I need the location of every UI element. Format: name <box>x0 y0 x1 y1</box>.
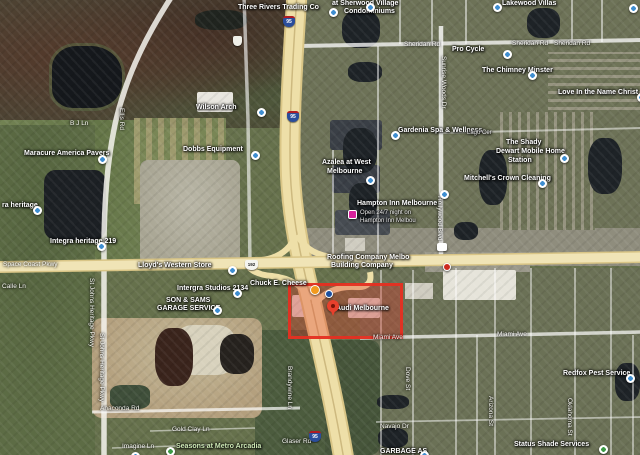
place-label[interactable]: Building Company <box>331 262 393 269</box>
road-label: Sheridan Rd <box>554 40 590 47</box>
garbage-pin[interactable] <box>420 451 429 455</box>
garage-service-pin[interactable] <box>213 306 222 315</box>
road-label: Ellis Rd <box>118 108 125 130</box>
place-label[interactable]: Seasons at Metro Arcadia <box>176 443 261 450</box>
place-label[interactable]: Audi Melbourne <box>336 305 389 312</box>
place-label[interactable]: Dobbs Equipment <box>183 146 243 153</box>
place-label[interactable]: Dewart Mobile Home <box>496 148 565 155</box>
place-label[interactable]: The Shady <box>506 139 541 146</box>
place-label[interactable]: Azalea at West <box>322 159 371 166</box>
route-shield-95: 95 <box>287 111 299 122</box>
road-label: Sheridan Rd <box>404 41 440 48</box>
road-label: St Johns Heritage Pkwy <box>88 278 95 347</box>
mitchells-pin[interactable] <box>538 179 547 188</box>
road-label: Miami Ave <box>373 334 403 341</box>
road-label: B J Ln <box>70 120 88 127</box>
poi-pin[interactable] <box>440 190 449 199</box>
place-label[interactable]: Redfox Pest Service <box>563 370 630 377</box>
place-label[interactable]: Pro Cycle <box>452 46 484 53</box>
road-label: Calle Ln <box>2 283 26 290</box>
store-badge-pin[interactable] <box>437 243 447 251</box>
lloyds-western-pin[interactable] <box>228 266 237 275</box>
place-label[interactable]: SON & SAMS <box>166 297 210 304</box>
route-shield-95: 95 <box>283 16 295 27</box>
maracure-pavers-pin[interactable] <box>98 155 107 164</box>
road-label: Oklahoma St <box>566 398 573 436</box>
road-label: Imagine Ln <box>122 443 154 450</box>
road-label: St Johns Heritage Pkwy <box>98 333 105 402</box>
place-label[interactable]: Lakewood Villas <box>502 0 556 7</box>
place-label[interactable]: Lago Cer <box>467 130 492 136</box>
place-label[interactable]: Three Rivers Trading Co <box>238 4 319 11</box>
intergra-studios-pin[interactable] <box>233 289 242 298</box>
seasons-park-pin[interactable] <box>166 447 175 455</box>
place-label[interactable]: The Chimney Minster <box>482 67 553 74</box>
minor-grid-south <box>376 268 640 455</box>
integra-heritage-pin[interactable] <box>97 242 106 251</box>
place-label[interactable]: Station <box>508 157 532 164</box>
st-johns-heritage-pkwy-road <box>104 0 172 455</box>
place-label[interactable]: Integra heritage 219 <box>50 238 116 245</box>
place-label[interactable]: Hampton Inn Melbou <box>360 218 416 224</box>
place-label[interactable]: Love In the Name Christ <box>558 89 638 96</box>
road-label: Glaser Rd <box>282 438 311 445</box>
road-label: Dove St <box>404 367 411 390</box>
route-shield-192: 192 <box>245 260 258 270</box>
road-label: Sunrise Woods Dr <box>440 56 447 109</box>
dobbs-equipment-pin[interactable] <box>251 151 260 160</box>
road-label: Space Coast Pkwy <box>3 261 58 268</box>
chimney-pin[interactable] <box>528 71 537 80</box>
status-shade-pin[interactable] <box>599 445 608 454</box>
place-label[interactable]: Lloyd's Western Store <box>138 262 212 269</box>
route-shield-blank <box>233 36 242 46</box>
place-label[interactable]: Hampton Inn Melbourne <box>357 200 437 207</box>
road-label: Anaconda Rd <box>100 405 139 412</box>
sherwood-village-pin[interactable] <box>366 3 375 12</box>
place-label[interactable]: Melbourne <box>327 168 362 175</box>
poi-pin[interactable] <box>629 4 638 13</box>
place-label[interactable]: GARAGE SERVICE <box>157 305 220 312</box>
i95-freeway <box>290 0 344 455</box>
lakewood-villas-pin[interactable] <box>493 3 502 12</box>
gardenia-spa-pin[interactable] <box>391 131 400 140</box>
place-label[interactable]: Status Shade Services <box>514 441 589 448</box>
chuck-e-cheese-pin[interactable] <box>310 285 320 295</box>
hampton-inn-ad-pin[interactable] <box>348 210 357 219</box>
place-label[interactable]: Open 24/7 night on <box>360 210 411 216</box>
minor-road <box>244 0 250 264</box>
place-label[interactable]: Roofing Company Melbo <box>327 254 409 261</box>
road-label: Sheridan Rd <box>512 40 548 47</box>
road-label: Navajo Dr <box>380 423 409 430</box>
place-label[interactable]: Wilson Arch <box>196 104 237 111</box>
redfox-pest-pin[interactable] <box>626 374 635 383</box>
business-logo-pin[interactable] <box>325 290 333 298</box>
pro-cycle-pin[interactable] <box>503 50 512 59</box>
place-label[interactable]: Chuck E. Cheese <box>250 280 307 287</box>
road-label: Arizona St <box>487 396 494 426</box>
business-logo-pin[interactable] <box>443 263 451 271</box>
dewart-mobile-pin[interactable] <box>560 154 569 163</box>
us192-road <box>0 257 640 267</box>
heritage-pin[interactable] <box>33 206 42 215</box>
azalea-pin[interactable] <box>366 176 375 185</box>
road-label: Brandywine Ln <box>286 366 293 409</box>
road-label: Miami Ave <box>497 331 527 338</box>
place-label[interactable]: Maracure America Pavers <box>24 150 109 157</box>
road-label: Gold Clay Ln <box>172 426 210 433</box>
route-shield-95: 95 <box>309 431 321 442</box>
audi-melbourne-pin[interactable] <box>327 300 339 316</box>
three-rivers-trading-pin[interactable] <box>329 8 338 17</box>
wilson-arch-pin[interactable] <box>257 108 266 117</box>
satellite-map[interactable]: Sheridan RdSheridan RdSheridan RdSpace C… <box>0 0 640 455</box>
